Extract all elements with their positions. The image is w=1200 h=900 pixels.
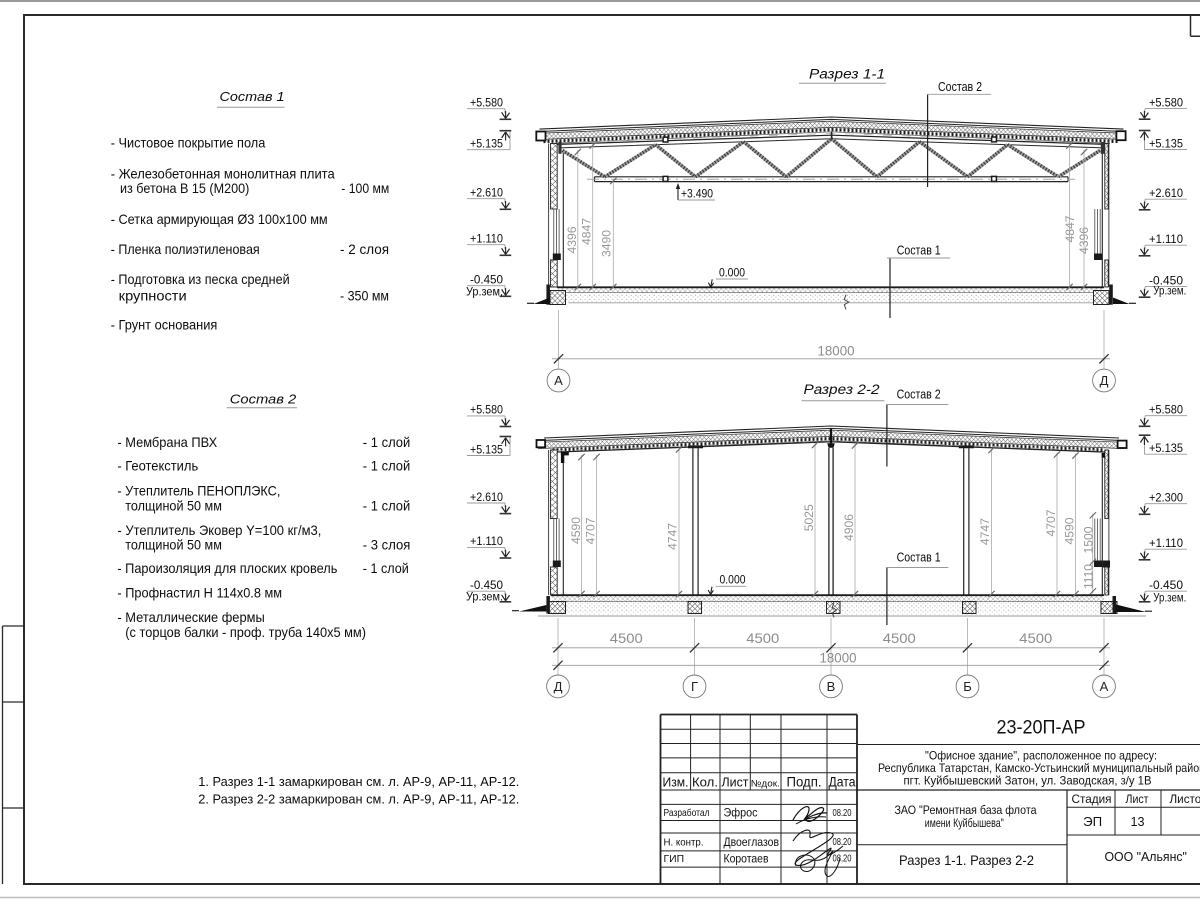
svg-text:- Пленка полиэтиленовая: - Пленка полиэтиленовая [111, 241, 260, 257]
svg-text:+3.490: +3.490 [681, 187, 713, 201]
svg-text:- Металлические фермы: - Металлические фермы [117, 609, 264, 625]
svg-text:1500: 1500 [1081, 526, 1095, 553]
svg-text:Изм.: Изм. [663, 775, 689, 790]
svg-text:- Геотекстиль: - Геотекстиль [117, 458, 198, 474]
svg-text:4500: 4500 [610, 630, 643, 646]
svg-text:- Утеплитель ПЕНОПЛЭКС,: - Утеплитель ПЕНОПЛЭКС, [117, 482, 280, 498]
svg-text:1. Разрез 1-1 замаркирован см.: 1. Разрез 1-1 замаркирован см. л. АР-9, … [198, 774, 519, 789]
svg-text:3490: 3490 [600, 230, 614, 257]
svg-text:+5.135: +5.135 [1149, 441, 1183, 455]
svg-text:4396: 4396 [565, 226, 579, 253]
svg-text:А: А [554, 373, 563, 388]
svg-text:"Офисное здание", расположенно: "Офисное здание", расположенное по адрес… [925, 750, 1157, 763]
svg-text:5025: 5025 [802, 504, 816, 531]
svg-text:Ур.зем.: Ур.зем. [1153, 284, 1186, 298]
svg-text:4707: 4707 [583, 517, 597, 544]
svg-text:- 1 слой: - 1 слой [363, 458, 411, 474]
svg-text:+5.135: +5.135 [470, 137, 503, 151]
svg-text:Двоеглазов: Двоеглазов [724, 835, 780, 849]
svg-text:ЗАО "Ремонтная база флота: ЗАО "Ремонтная база флота [895, 803, 1037, 817]
svg-text:Г: Г [691, 679, 698, 694]
svg-text:18000: 18000 [818, 343, 855, 359]
svg-text:23-20П-АР: 23-20П-АР [997, 718, 1086, 739]
svg-text:+1.110: +1.110 [1149, 536, 1183, 550]
svg-text:Состав 1: Состав 1 [897, 550, 941, 565]
svg-text:1110: 1110 [1081, 564, 1095, 589]
svg-text:+5.580: +5.580 [470, 403, 503, 417]
svg-text:Эфрос: Эфрос [724, 806, 758, 820]
svg-text:08.20: 08.20 [833, 854, 852, 865]
svg-text:- Профнастил Н 114х0.8 мм: - Профнастил Н 114х0.8 мм [117, 584, 282, 600]
svg-text:толщиной 50 мм: толщиной 50 мм [125, 497, 222, 513]
svg-text:Состав 1: Состав 1 [897, 243, 941, 258]
svg-text:Разрез 1-1: Разрез 1-1 [809, 67, 885, 82]
svg-text:4500: 4500 [1019, 630, 1052, 646]
svg-text:Стадия: Стадия [1072, 792, 1112, 806]
svg-text:+5.135: +5.135 [1149, 136, 1183, 150]
svg-text:имени Куйбышева": имени Куйбышева" [925, 816, 1004, 830]
svg-text:13: 13 [1131, 814, 1145, 829]
svg-text:пгт. Куйбышевский Затон, ул. З: пгт. Куйбышевский Затон, ул. Заводская, … [904, 775, 1152, 788]
svg-text:Дата: Дата [829, 775, 856, 790]
svg-text:ООО "Альянс": ООО "Альянс" [1104, 849, 1187, 864]
svg-text:Коротаев: Коротаев [724, 852, 769, 866]
svg-text:0.000: 0.000 [719, 266, 745, 280]
svg-text:- Пароизоляция для плоских кро: - Пароизоляция для плоских кровель [117, 560, 337, 576]
svg-text:0.000: 0.000 [720, 573, 746, 587]
svg-text:+2.300: +2.300 [1149, 491, 1183, 505]
svg-text:- Железобетонная монолитная п: - Железобетонная монолитная плита [111, 166, 335, 182]
svg-text:Кол.: Кол. [692, 775, 718, 790]
svg-text:4847: 4847 [1063, 215, 1077, 242]
svg-text:Разрез 2-2: Разрез 2-2 [804, 382, 881, 397]
svg-text:+2.610: +2.610 [1149, 186, 1183, 200]
svg-text:Состав 2: Состав 2 [897, 387, 941, 402]
svg-text:+1.110: +1.110 [470, 232, 503, 246]
svg-text:4396: 4396 [1077, 227, 1091, 254]
svg-text:- Сетка армирующая Ø3 100х100: - Сетка армирующая Ø3 100х100 мм [111, 211, 328, 227]
svg-text:+1.110: +1.110 [470, 534, 503, 548]
svg-text:+2.610: +2.610 [470, 490, 503, 504]
svg-text:А: А [1100, 679, 1109, 694]
svg-text:2. Разрез 2-2 замаркирован см.: 2. Разрез 2-2 замаркирован см. л. АР-9, … [198, 791, 519, 806]
svg-text:Состав 2: Состав 2 [938, 79, 982, 94]
svg-text:из бетона В 15 (М200): из бетона В 15 (М200) [120, 180, 249, 196]
svg-text:- 1 слой: - 1 слой [363, 434, 411, 450]
svg-text:4590: 4590 [569, 517, 583, 544]
svg-text:- Мембрана ПВХ: - Мембрана ПВХ [117, 434, 217, 450]
svg-text:4747: 4747 [978, 518, 992, 545]
svg-text:+5.580: +5.580 [470, 96, 503, 110]
svg-text:+5.580: +5.580 [1149, 95, 1183, 109]
svg-text:- Грунт основания: - Грунт основания [111, 317, 218, 333]
svg-text:4500: 4500 [883, 630, 916, 646]
svg-text:№док.: №док. [751, 779, 780, 790]
svg-text:Б: Б [963, 679, 972, 694]
svg-text:Листов: Листов [1170, 792, 1200, 806]
svg-text:Лист: Лист [1126, 792, 1149, 806]
svg-text:Д: Д [1100, 373, 1109, 388]
svg-text:- 100 мм: - 100 мм [341, 180, 389, 196]
svg-text:Ур.зем.: Ур.зем. [466, 285, 503, 299]
svg-text:Состав 1: Состав 1 [220, 89, 285, 104]
svg-text:ГИП: ГИП [664, 854, 685, 865]
svg-text:4707: 4707 [1044, 509, 1058, 536]
svg-text:Состав 2: Состав 2 [230, 392, 297, 407]
svg-text:4590: 4590 [1062, 517, 1076, 544]
svg-text:+1.110: +1.110 [1149, 232, 1183, 246]
svg-text:08.20: 08.20 [833, 808, 852, 819]
svg-text:4500: 4500 [746, 630, 779, 646]
svg-text:+5.135: +5.135 [470, 442, 503, 456]
svg-text:+2.610: +2.610 [470, 186, 503, 200]
svg-text:- Подготовка из песка средней: - Подготовка из песка средней [111, 271, 290, 287]
svg-text:Разработал: Разработал [664, 807, 710, 819]
svg-text:Разрез 1-1. Разрез 2-2: Разрез 1-1. Разрез 2-2 [899, 852, 1034, 868]
svg-text:Д: Д [554, 679, 563, 694]
svg-text:Подп.: Подп. [787, 775, 822, 790]
svg-text:В: В [827, 679, 836, 694]
svg-text:Республика Татарстан, Камско-У: Республика Татарстан, Камско-Устьинский … [878, 762, 1200, 775]
svg-text:+5.580: +5.580 [1149, 403, 1183, 417]
svg-text:Лист: Лист [722, 775, 749, 790]
svg-text:Ур.зем.: Ур.зем. [466, 590, 503, 604]
svg-text:ЭП: ЭП [1083, 814, 1102, 829]
svg-text:- 1 слой: - 1 слой [363, 497, 411, 513]
svg-text:18000: 18000 [820, 650, 857, 666]
svg-text:Н. контр.: Н. контр. [664, 838, 704, 849]
svg-text:- 2 слоя: - 2 слоя [340, 241, 389, 257]
svg-text:(с торцов балки - проф. труба: (с торцов балки - проф. труба 140х5 мм) [125, 624, 366, 640]
svg-text:4747: 4747 [666, 523, 680, 550]
svg-text:- 350 мм: - 350 мм [340, 288, 389, 304]
svg-text:крупности: крупности [119, 288, 187, 304]
svg-text:- 3 слоя: - 3 слоя [363, 536, 411, 552]
svg-text:4847: 4847 [580, 218, 594, 245]
svg-text:Ур.зем.: Ур.зем. [1153, 591, 1186, 605]
svg-text:толщиной 50 мм: толщиной 50 мм [125, 536, 222, 552]
svg-text:- Чистовое покрытие пола: - Чистовое покрытие пола [111, 135, 266, 151]
svg-text:4906: 4906 [842, 514, 856, 541]
svg-text:- 1 слой: - 1 слой [363, 560, 409, 576]
